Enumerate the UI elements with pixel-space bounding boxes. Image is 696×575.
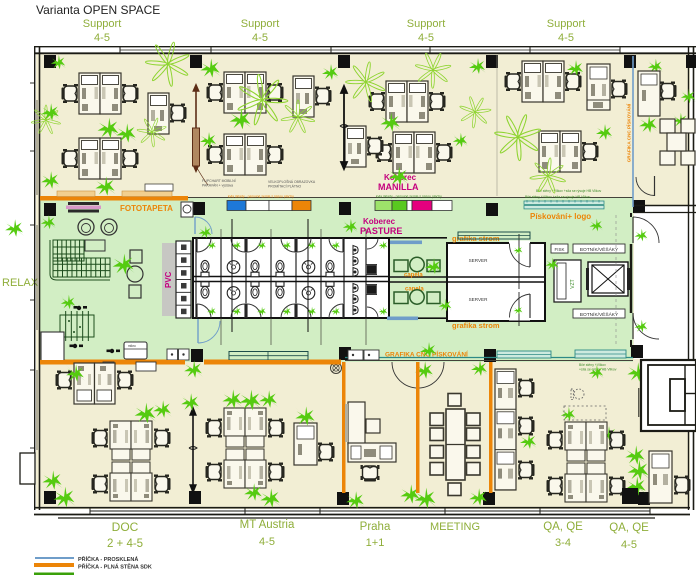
svg-text:2 + 4-5: 2 + 4-5 — [107, 538, 143, 550]
svg-text:QA, QE: QA, QE — [543, 521, 583, 533]
svg-text:Pískování+ logo: Pískování+ logo — [530, 212, 591, 221]
svg-text:4-5: 4-5 — [259, 536, 275, 548]
svg-text:SERVER: SERVER — [469, 297, 488, 302]
svg-text:4-5: 4-5 — [621, 539, 637, 551]
svg-text:PROMÍTACÍ PLÁTNO: PROMÍTACÍ PLÁTNO — [268, 185, 301, 189]
svg-text:MT Austria: MT Austria — [240, 519, 295, 531]
svg-text:Bílé stěny +Vlikov +síla se rý: Bílé stěny +Vlikov +síla se rýsuje HB Vl… — [525, 195, 591, 199]
svg-text:FOTOTAPETA: FOTOTAPETA — [120, 204, 173, 213]
svg-text:mikro: mikro — [128, 344, 136, 348]
svg-text:capela: capela — [404, 273, 423, 279]
svg-text:Bílé stěny +Vlikov: Bílé stěny +Vlikov — [579, 363, 606, 367]
svg-text:FISK: FISK — [554, 247, 564, 252]
svg-text:MANILLA: MANILLA — [378, 182, 419, 192]
svg-text:4-5: 4-5 — [558, 32, 574, 44]
svg-text:PŘÍČKA - PROSKLENÁ: PŘÍČKA - PROSKLENÁ — [78, 555, 138, 563]
svg-text:GRAFIKA CNC PÍSKOVÁNÍ: GRAFIKA CNC PÍSKOVÁNÍ — [625, 103, 632, 162]
svg-text:FLIPCHART MOBILNÍ: FLIPCHART MOBILNÍ — [202, 179, 236, 183]
svg-text:DOC: DOC — [112, 520, 139, 534]
svg-text:4-5: 4-5 — [94, 32, 110, 44]
svg-text:VZT: VZT — [570, 279, 576, 288]
svg-text:kvla sklady - pasovné semia s: kvla sklady - pasovné semia s sasou plac… — [376, 195, 442, 199]
svg-text:Varianta OPEN SPACE: Varianta OPEN SPACE — [36, 3, 160, 17]
svg-text:1+1: 1+1 — [366, 537, 385, 549]
svg-text:PVC: PVC — [164, 271, 173, 288]
svg-text:Support: Support — [547, 18, 586, 30]
svg-text:Support: Support — [407, 18, 446, 30]
svg-text:Bílé stěny +Vlikov +síla se rý: Bílé stěny +Vlikov +síla se rýsuje HB Vl… — [536, 189, 602, 193]
svg-text:QA, QE: QA, QE — [609, 522, 649, 534]
svg-text:VELKOPLOŠNÁ OBRAZOVKA: VELKOPLOŠNÁ OBRAZOVKA — [268, 179, 316, 184]
svg-text:kvla sklady - pasovné semia s: kvla sklady - pasovné semia s sasou plac… — [228, 195, 294, 199]
svg-text:grafika strom: grafika strom — [452, 321, 500, 330]
svg-text:3-4: 3-4 — [555, 537, 571, 549]
svg-text:PARAVÁN + výstava: PARAVÁN + výstava — [202, 184, 233, 188]
svg-text:RELAX: RELAX — [2, 277, 39, 289]
svg-text:Support: Support — [83, 18, 122, 30]
svg-text:PASTURE: PASTURE — [360, 226, 402, 236]
svg-text:SERVER: SERVER — [469, 258, 488, 263]
svg-text:Praha: Praha — [360, 521, 391, 533]
svg-text:Support: Support — [241, 18, 280, 30]
svg-text:MEETING: MEETING — [430, 521, 480, 533]
svg-text:4-5: 4-5 — [252, 32, 268, 44]
svg-text:Koberec: Koberec — [363, 217, 396, 226]
svg-text:PŘÍČKA - PLNÁ STĚNA SDK: PŘÍČKA - PLNÁ STĚNA SDK — [78, 563, 152, 571]
svg-text:4-5: 4-5 — [418, 32, 434, 44]
